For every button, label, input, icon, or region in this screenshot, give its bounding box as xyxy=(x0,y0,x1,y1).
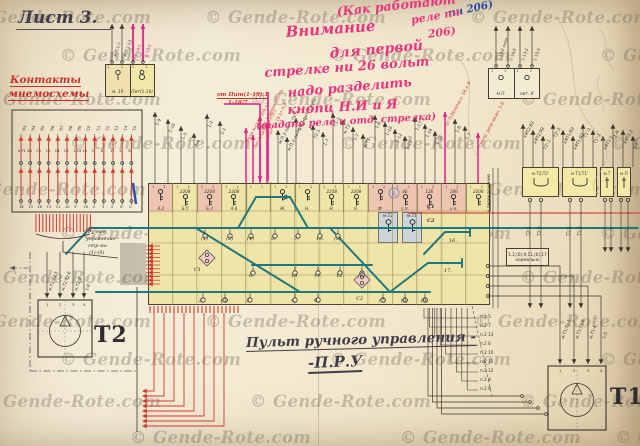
lamp-number: 11. xyxy=(314,273,322,279)
cell-letter: Б.3 xyxy=(206,206,213,211)
tiny-label: '04 xyxy=(31,125,36,132)
tiny-label: 2 xyxy=(111,206,113,210)
normal-state-word: нормально xyxy=(515,257,539,262)
tiny-label: кЯТ1;В2 xyxy=(564,127,576,145)
tiny-label: 13 xyxy=(28,206,33,210)
panel-cell: 1 2 Ф. xyxy=(369,184,393,212)
tiny-label: 6 xyxy=(128,150,130,154)
tiny-label: 1 xyxy=(46,303,48,307)
tiny-label: 3 xyxy=(72,303,74,307)
tiny-label: С1 xyxy=(36,150,41,154)
feed-note-line2: 1-18/7 xyxy=(228,100,248,106)
key-icon xyxy=(181,194,190,206)
tiny-label: 0 xyxy=(129,206,131,210)
feed-note-line1: от Пит(1-19):1 xyxy=(217,92,268,99)
cell-terminals: 1 2 xyxy=(250,185,267,189)
key-icon xyxy=(205,194,214,206)
terminal-box-left: 1 2 м. 19 1 2 Пит(1-19) xyxy=(105,64,155,97)
tiny-label: 5А xyxy=(27,150,32,154)
key-icon xyxy=(401,194,410,206)
cell-letter: 9. xyxy=(354,206,358,211)
lamp-number: 9. xyxy=(314,298,319,304)
watermark: © Gende-Rote.com xyxy=(600,224,640,243)
tiny-label: Т1':2 xyxy=(594,134,603,146)
terminal-cell: 1 2 м. 19 xyxy=(106,65,131,96)
cell-letter: Б.5 xyxy=(182,206,189,211)
tiny-label: п.2 12 xyxy=(480,369,493,373)
panel-cell-mT1: м.Т1 xyxy=(402,212,422,243)
tiny-label: п.2 9 xyxy=(480,387,491,391)
tiny-label: 4 xyxy=(83,303,85,307)
bus-c2-label: С2 xyxy=(427,218,434,224)
tiny-label: Т1:2 xyxy=(579,226,584,236)
stub-17-label: 17. xyxy=(444,268,452,274)
watermark: © Gende-Rote.com xyxy=(0,312,151,331)
contact-icon xyxy=(137,69,147,81)
tiny-label: 1-19 xyxy=(73,150,81,154)
terminal-cell-label: м. 19 xyxy=(112,90,123,95)
key-icon xyxy=(327,194,336,206)
lamp-number: (9) xyxy=(421,298,428,304)
lamp-number: 7. xyxy=(294,236,299,242)
panel-cell: 1 2 2208Б.3 xyxy=(198,184,222,212)
manual-note-line: (1)-(9) xyxy=(89,251,104,256)
relay-box-mP: м.П xyxy=(617,167,631,197)
tiny-label: 2 xyxy=(119,150,121,154)
tiny-label: '10 xyxy=(86,125,91,132)
manual-note-line: стр-ми xyxy=(88,244,107,249)
sheet-title: Лист 3. xyxy=(16,8,111,30)
tiny-label: 1-13:2 xyxy=(521,48,529,62)
tiny-label: Т2:2 xyxy=(539,226,544,236)
manual-note-line: управление xyxy=(86,237,116,242)
lamp-number: (1) xyxy=(201,236,208,242)
watermark: © Gende-Rote.com xyxy=(475,312,640,331)
tiny-label: 4 xyxy=(600,369,602,373)
lamp-icon xyxy=(497,73,505,82)
panel-cell: 1 2 А.2 xyxy=(149,184,173,212)
tiny-label: '08 xyxy=(68,125,73,132)
tiny-label: 1-15/3 xyxy=(533,48,541,62)
tiny-label: 5 xyxy=(74,206,76,210)
tiny-label: 1-7 xyxy=(324,139,331,147)
tiny-label: 2 xyxy=(59,303,61,307)
lamp-number: 6. xyxy=(249,273,254,279)
tiny-label: 6 xyxy=(120,206,122,210)
control-panel: 1 2 А.21 2 2208Б.51 2 2208Б.31 2 2208А.6… xyxy=(148,183,490,305)
key-icon xyxy=(408,219,417,233)
panel-cell: 1 2 Ж. xyxy=(271,184,295,212)
tiny-label: С4 xyxy=(55,150,60,154)
lamp-number: (3) xyxy=(221,298,228,304)
tiny-label: п.2 11 xyxy=(480,360,493,364)
left-heading-line2: мнемосхемы xyxy=(8,88,89,101)
contact-u-icon xyxy=(530,176,552,188)
key-icon xyxy=(449,194,458,206)
tiny-label: 17 xyxy=(110,150,115,154)
lamp-number: (4) xyxy=(247,236,254,242)
diamond-c1-label: С1 xyxy=(194,267,201,273)
tiny-label: 1-5 xyxy=(602,332,608,340)
cell-letter: у.п. xyxy=(401,206,409,211)
tiny-label: С1 xyxy=(46,150,51,154)
watermark: © Gende-Rote.com xyxy=(600,46,640,65)
tiny-label: '12 xyxy=(105,125,110,132)
tiny-label: 10 xyxy=(65,206,70,210)
tiny-label: 1 xyxy=(559,369,561,373)
normal-state-box: 1,2,(6),9,11,(6),17 нормально xyxy=(506,248,549,266)
watermark: © Gende-Rote.com xyxy=(70,134,251,153)
watermark: © Gende-Rote.com xyxy=(250,392,431,411)
relay-box-mT: м.Т xyxy=(600,167,614,197)
tiny-label: 4 xyxy=(93,206,95,210)
tiny-label: '05 xyxy=(40,125,45,132)
watermark: © Gende-Rote.com xyxy=(60,350,241,369)
tiny-label: 16 xyxy=(83,206,88,210)
tiny-label: '06 xyxy=(50,125,55,132)
panel-cell: 1 2 2208А.6 xyxy=(222,184,246,212)
contact-u-icon xyxy=(569,176,591,188)
tiny-label: 1-9 xyxy=(156,119,163,127)
tiny-label: '13 xyxy=(114,125,119,132)
tiny-label: 3 xyxy=(587,369,589,373)
lamp-number: (8) xyxy=(401,298,408,304)
relay-box-mT2T2: м.Т2;Т2' xyxy=(522,167,559,197)
panel-cell: 1 2 2208Н. xyxy=(320,184,344,212)
panel-cell: 1 2 Н. xyxy=(296,184,320,212)
watermark: © Gende-Rote.com xyxy=(0,392,161,411)
panel-cell: 1 2 22089. xyxy=(344,184,368,212)
key-icon xyxy=(352,194,361,206)
panel-cell: 1 2 19Бу.я. xyxy=(442,184,466,212)
cell-letter: Н. xyxy=(329,206,333,211)
tiny-label: Т1':1 xyxy=(584,128,593,140)
watermark: © Gende-Rote.com xyxy=(615,428,640,446)
tiny-label: п.2 8 xyxy=(480,378,491,382)
watermark: © Gende-Rote.com xyxy=(470,8,640,27)
lamp-number: (6) xyxy=(358,273,365,279)
manual-note-line: Ручное xyxy=(88,230,106,235)
key-icon xyxy=(156,189,165,201)
panel-cell: 1 2 xyxy=(247,184,271,212)
switchover-note: к переключению xyxy=(488,174,493,212)
lamp-number: (7) xyxy=(379,298,386,304)
tiny-label: 1-2 xyxy=(208,121,215,129)
lamp-number: 10. xyxy=(291,273,299,279)
handwritten-note: 206) xyxy=(427,24,457,41)
lamp-icon xyxy=(523,73,531,82)
lamp-number: 2. xyxy=(199,298,204,304)
scanned-schematic-sheet: Лист 3. Контакты мнемосхемы от Пит(1-19)… xyxy=(0,0,640,446)
watermark: © Gende-Rote.com xyxy=(400,428,581,446)
tiny-label: 3 xyxy=(102,206,104,210)
tiny-label: п.2 13 xyxy=(480,333,493,337)
terminal-cell: 1 2 Н.П. xyxy=(489,69,515,98)
watermark: © Gende-Rote.com xyxy=(600,350,640,369)
lamp-number: 5. xyxy=(271,236,276,242)
cell-letter: А.6 xyxy=(231,206,238,211)
key-icon xyxy=(376,189,385,201)
cell-letter: у.я. xyxy=(450,206,458,211)
terminal-cell: 1 2 пит. Я xyxy=(515,69,540,98)
lamp-number: (5) xyxy=(334,236,341,242)
lamp-number: 3. xyxy=(246,298,251,304)
lamp-number: 12. xyxy=(336,273,344,279)
lamp-number: 4. xyxy=(291,298,296,304)
key-icon xyxy=(474,194,483,206)
transformer-t2-label: Т2 xyxy=(94,322,128,348)
tiny-label: '03 xyxy=(22,125,27,132)
watermark: © Gende-Rote.com xyxy=(205,312,386,331)
contact-icon xyxy=(620,176,628,189)
key-icon xyxy=(278,189,287,201)
diamond-c2-label: С2 xyxy=(356,296,363,302)
tiny-label: 2 xyxy=(573,369,575,373)
contact-icon xyxy=(113,69,123,81)
tiny-label: Т2:1 xyxy=(528,226,533,236)
caption-line1: Пульт ручного управления - xyxy=(246,329,476,352)
lamp-number: 13. xyxy=(316,236,324,242)
tiny-label: 18 xyxy=(19,206,24,210)
tiny-label: '15 xyxy=(132,125,137,132)
cell-letter: А.2 xyxy=(157,206,164,211)
panel-cell: 1 2 2208Б.5 xyxy=(173,184,197,212)
tiny-label: 18 xyxy=(37,206,42,210)
cell-letter: Ж. xyxy=(280,206,286,211)
key-icon xyxy=(303,189,312,201)
contact-icon xyxy=(603,176,611,189)
tiny-label: п.2 5 xyxy=(480,315,491,319)
tiny-label: 8 xyxy=(101,150,103,154)
tiny-label: кЯТ2:В2 xyxy=(524,121,536,139)
tiny-label: от П.безопасн. 2А и Ф xyxy=(446,81,473,127)
terminal-cell-label: Н.П. xyxy=(497,92,506,97)
tiny-label: '07 xyxy=(59,125,64,132)
terminal-cell-label: Пит(1-19) xyxy=(131,90,153,95)
tiny-label: п.Т1 xyxy=(18,150,26,154)
tiny-label: '09 xyxy=(77,125,82,132)
tiny-label: Т2':1 xyxy=(544,140,553,152)
terminal-cell: 1 2 Пит(1-19) xyxy=(131,65,155,96)
tiny-label: п.2 6 xyxy=(480,342,491,346)
tiny-label: '11 xyxy=(96,125,101,132)
caption-line2: -П.Р.У xyxy=(308,352,363,374)
transformer-t1-label: Т1 xyxy=(610,384,640,410)
panel-cell-mT2: м.Т2 xyxy=(378,212,398,243)
key-icon xyxy=(384,219,393,233)
relay-box-mT1T1: м.Т1;Т1' xyxy=(562,167,597,197)
tiny-label: С2 xyxy=(64,150,69,154)
panel-cell: 1 2 4Бу.п. xyxy=(393,184,417,212)
key-icon xyxy=(229,194,238,206)
tiny-label: Т2':2 xyxy=(554,128,563,140)
tiny-label: кЯТ2;Я2 xyxy=(534,127,546,145)
tiny-label: п.2 10 xyxy=(480,351,493,355)
cell-letter: Ф. xyxy=(378,206,383,211)
tiny-label: 1-8 xyxy=(456,126,463,134)
stub-16-label: 16. xyxy=(449,238,457,244)
terminal-cell-label: пит. Я xyxy=(520,92,534,97)
tiny-label: '14 xyxy=(123,125,128,132)
tiny-label: 13 xyxy=(47,206,52,210)
watermark: © Gende-Rote.com xyxy=(520,268,640,287)
cell-letter: Н. xyxy=(305,206,309,211)
watermark: © Gende-Rote.com xyxy=(0,180,146,199)
tiny-label: 11 xyxy=(56,206,61,210)
lamp-number: (2) xyxy=(226,236,233,242)
tiny-label: Т2:3 xyxy=(314,130,322,141)
tiny-label: Т1:1 xyxy=(568,226,573,236)
tiny-label: п.2 7 xyxy=(480,324,491,328)
tiny-label: 1-6 xyxy=(85,284,91,292)
left-heading-line1: Контакты xyxy=(10,74,81,87)
bus-c1-label: С1 xyxy=(427,204,434,210)
terminal-box-right: 1 2 Н.П. 1 2 пит. Я xyxy=(488,68,540,99)
watermark: © Gende-Rote.com xyxy=(130,428,311,446)
tiny-label: 1-10 xyxy=(169,123,178,134)
tiny-label: 13 xyxy=(82,150,87,154)
tiny-label: 2 xyxy=(92,150,94,154)
